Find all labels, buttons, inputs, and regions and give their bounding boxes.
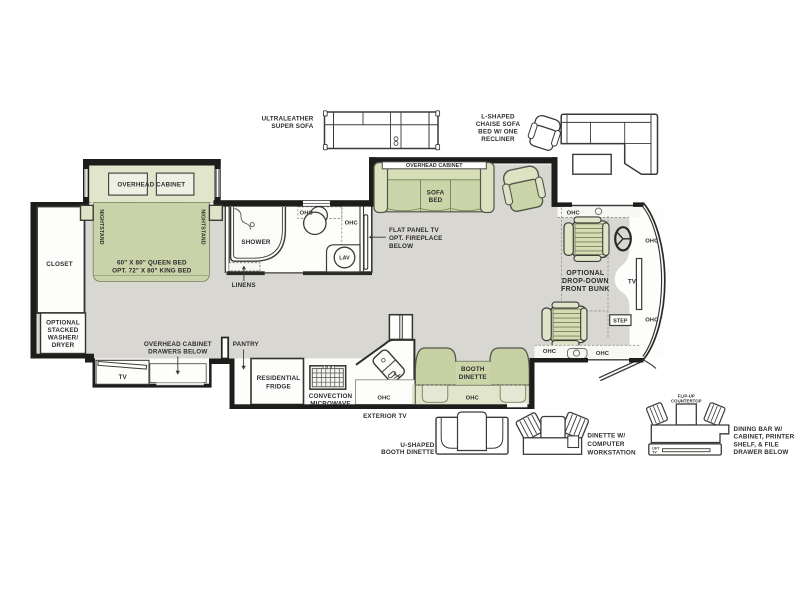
svg-text:SOFA: SOFA <box>427 190 445 197</box>
svg-text:STEP: STEP <box>613 319 628 325</box>
svg-text:LINENS: LINENS <box>232 282 256 289</box>
svg-text:SHOWER: SHOWER <box>241 239 271 246</box>
svg-text:BELOW: BELOW <box>389 243 413 250</box>
svg-text:RESIDENTIAL: RESIDENTIAL <box>257 375 301 382</box>
svg-text:DINETTE W/: DINETTE W/ <box>587 433 625 440</box>
svg-text:RECLINER: RECLINER <box>481 136 515 143</box>
svg-text:DINING BAR W/: DINING BAR W/ <box>734 426 783 433</box>
svg-text:60" X 80" QUEEN BED: 60" X 80" QUEEN BED <box>117 259 187 266</box>
svg-text:PANTRY: PANTRY <box>233 341 260 348</box>
svg-text:BOOTH: BOOTH <box>461 366 485 373</box>
svg-text:BOOTH DINETTE: BOOTH DINETTE <box>381 449 434 456</box>
svg-text:OHC: OHC <box>377 395 391 401</box>
svg-text:DRYER: DRYER <box>52 342 75 349</box>
svg-text:OPT. 72" X 80" KING BED: OPT. 72" X 80" KING BED <box>112 267 192 274</box>
svg-text:CONVECTION: CONVECTION <box>309 393 353 400</box>
svg-text:COUNTERTOP: COUNTERTOP <box>671 398 702 403</box>
svg-text:OHC: OHC <box>466 396 480 402</box>
svg-text:CLOSET: CLOSET <box>46 261 72 268</box>
svg-text:U-SHAPED: U-SHAPED <box>400 442 434 449</box>
svg-text:COMPUTER: COMPUTER <box>587 441 625 448</box>
svg-text:BED: BED <box>429 197 443 204</box>
svg-text:TV: TV <box>628 278 637 285</box>
svg-text:WASHER/: WASHER/ <box>48 335 79 342</box>
svg-text:OPTIONAL: OPTIONAL <box>566 270 604 277</box>
svg-text:EXTERIOR TV: EXTERIOR TV <box>363 413 407 420</box>
svg-text:CHAISE SOFA: CHAISE SOFA <box>476 121 521 128</box>
svg-text:TV: TV <box>119 374 128 381</box>
svg-text:SUPER SOFA: SUPER SOFA <box>271 123 313 130</box>
svg-text:STACKED: STACKED <box>47 327 78 334</box>
svg-text:ULTRALEATHER: ULTRALEATHER <box>262 116 314 123</box>
svg-text:OVERHEAD CABINET: OVERHEAD CABINET <box>117 181 185 188</box>
svg-text:DROP-DOWN: DROP-DOWN <box>562 278 609 285</box>
svg-text:NIGHTSTAND: NIGHTSTAND <box>200 209 206 244</box>
svg-text:OHC: OHC <box>567 211 581 217</box>
svg-text:L-SHAPED: L-SHAPED <box>481 113 515 120</box>
svg-text:OHC: OHC <box>543 349 557 355</box>
svg-text:WORKSTATION: WORKSTATION <box>587 449 636 456</box>
svg-text:DINETTE: DINETTE <box>459 374 487 381</box>
svg-text:OVERHEAD CABINET: OVERHEAD CABINET <box>406 163 463 169</box>
svg-text:OHC: OHC <box>596 351 610 357</box>
svg-text:NIGHTSTAND: NIGHTSTAND <box>98 209 104 244</box>
svg-text:DRAWER BELOW: DRAWER BELOW <box>734 449 789 456</box>
svg-text:OPT. FIREPLACE: OPT. FIREPLACE <box>389 235 443 242</box>
svg-text:FLAT PANEL TV: FLAT PANEL TV <box>389 227 440 234</box>
svg-text:TV: TV <box>652 450 657 454</box>
svg-text:CABINET, PRINTER: CABINET, PRINTER <box>734 434 795 441</box>
svg-text:SHELF, & FILE: SHELF, & FILE <box>734 441 779 448</box>
svg-text:OPTIONAL: OPTIONAL <box>46 320 80 327</box>
svg-text:FRIDGE: FRIDGE <box>266 383 291 390</box>
svg-text:LAV: LAV <box>339 256 350 262</box>
svg-text:DRAWERS BELOW: DRAWERS BELOW <box>148 349 207 356</box>
svg-text:FRONT BUNK: FRONT BUNK <box>561 286 610 293</box>
svg-text:OVERHEAD CABINET: OVERHEAD CABINET <box>144 341 212 348</box>
svg-text:BED W/ ONE: BED W/ ONE <box>478 128 518 135</box>
svg-text:OHC: OHC <box>300 211 314 217</box>
svg-text:OHC: OHC <box>345 221 359 227</box>
